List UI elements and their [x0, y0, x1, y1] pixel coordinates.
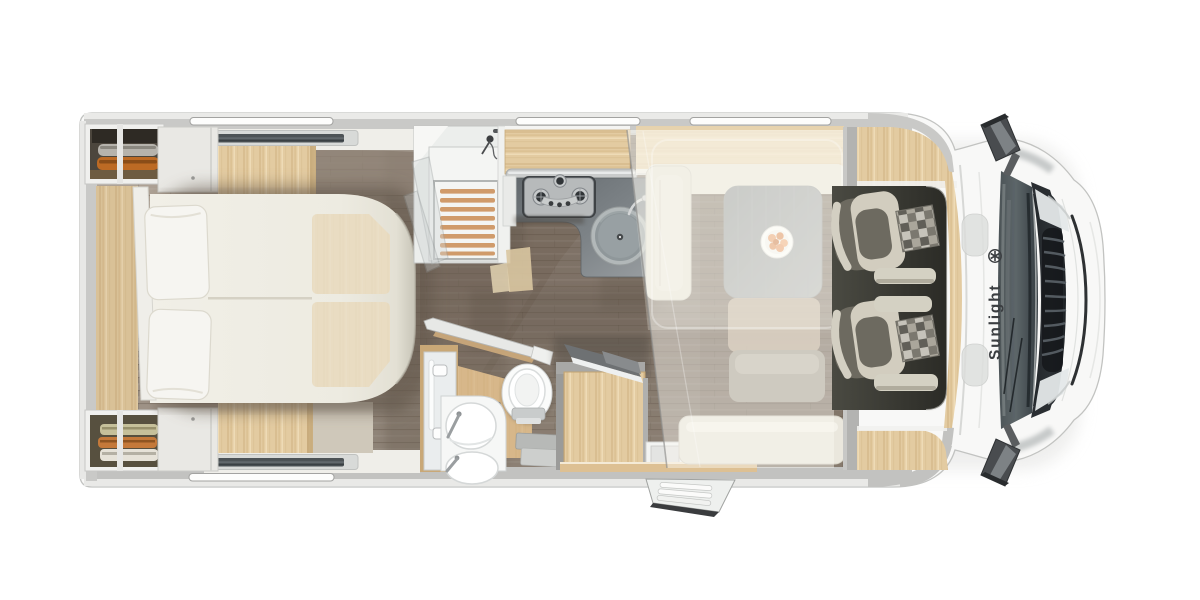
svg-text:Sunlight: Sunlight: [987, 284, 1004, 360]
